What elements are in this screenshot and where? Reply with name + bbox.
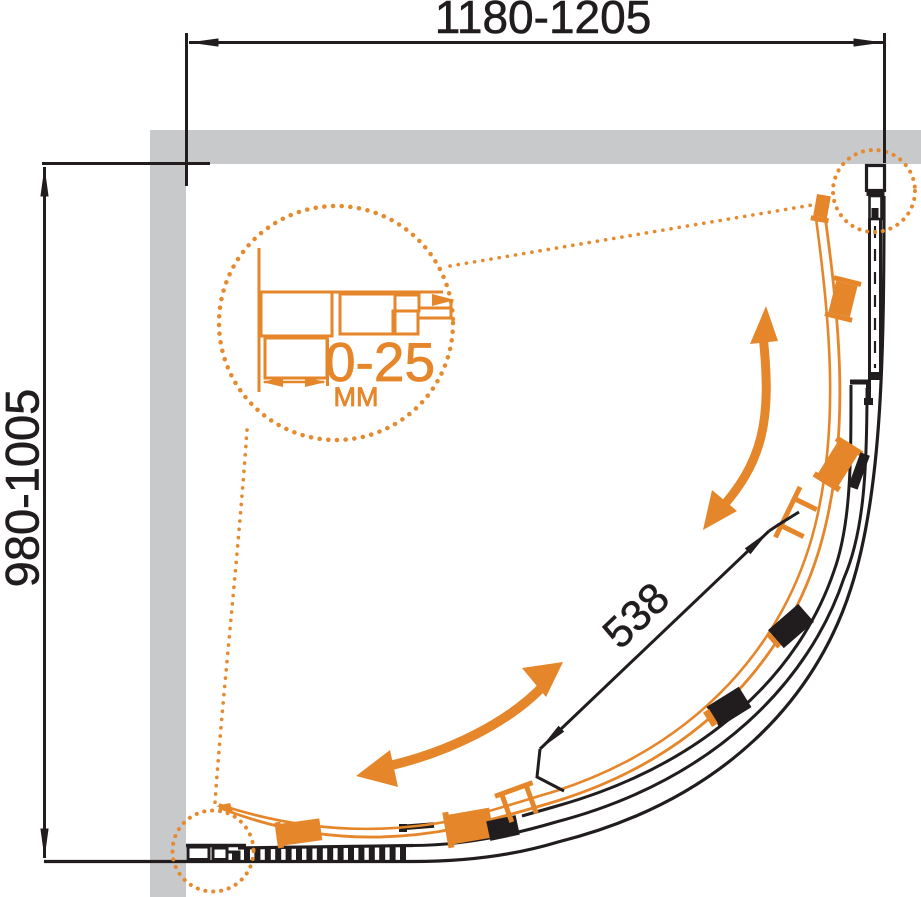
svg-text:1180-1205: 1180-1205 <box>435 0 652 43</box>
svg-text:980-1005: 980-1005 <box>0 389 49 588</box>
svg-text:MM: MM <box>334 382 379 412</box>
